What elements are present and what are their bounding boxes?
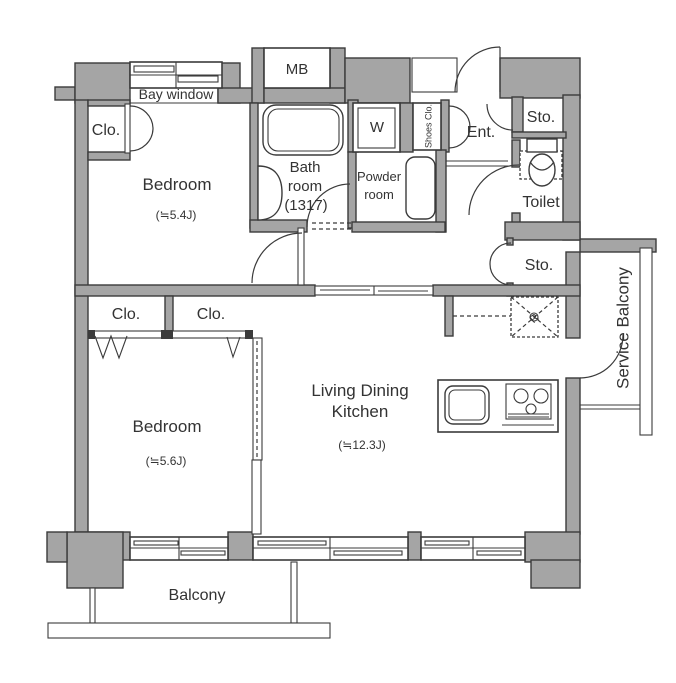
floor-plan-page: Bay window Clo. Bedroom (≒5.4J) MB Bath …	[0, 0, 676, 683]
label-bath-2: room	[288, 178, 322, 195]
label-storage-mid: Sto.	[525, 257, 553, 274]
label-bath-1: Bath	[290, 159, 321, 176]
label-closet2: Clo.	[197, 306, 225, 323]
closet2-accordion-icon	[227, 337, 240, 357]
label-balcony: Balcony	[169, 587, 226, 604]
label-entrance: Ent.	[467, 124, 495, 141]
label-bedroom1-area: (≒5.4J)	[156, 208, 197, 222]
label-ldk-area: (≒12.3J)	[338, 438, 385, 452]
label-closet-bedroom1: Clo.	[92, 122, 120, 139]
label-toilet: Toilet	[522, 194, 560, 211]
toilet-fixture	[520, 139, 562, 186]
powder-vanity	[406, 157, 435, 219]
sliding-door-hall-ldk	[315, 286, 433, 295]
label-storage-top: Sto.	[527, 109, 555, 126]
bedroom2-window	[130, 537, 228, 560]
label-ldk-2: Kitchen	[332, 402, 389, 421]
label-washer: W	[370, 119, 385, 136]
bathtub	[263, 105, 343, 155]
label-bay-window: Bay window	[139, 86, 215, 102]
closet-row-bottom-wall	[88, 330, 253, 339]
ldk-window-right	[421, 537, 525, 560]
label-ldk-1: Living Dining	[311, 381, 408, 400]
kitchen-counter	[438, 380, 558, 432]
label-bedroom1: Bedroom	[143, 175, 212, 194]
label-powder-2: room	[364, 187, 394, 202]
stove	[502, 384, 554, 425]
label-powder-1: Powder	[357, 169, 402, 184]
label-bedroom2-area: (≒5.6J)	[146, 454, 187, 468]
label-service-balcony: Service Balcony	[613, 267, 632, 389]
bath-basin	[258, 166, 282, 220]
label-bath-3: (1317)	[284, 197, 327, 214]
label-closet1: Clo.	[112, 306, 140, 323]
label-bedroom2: Bedroom	[133, 417, 202, 436]
floor-plan: Bay window Clo. Bedroom (≒5.4J) MB Bath …	[0, 0, 676, 683]
closet1-accordion-icon	[95, 336, 127, 358]
entrance-porch	[412, 58, 457, 92]
label-shoes-closet: Shoes Clo.	[423, 104, 433, 148]
sliding-door-bedroom2-ldk	[252, 338, 262, 534]
ldk-window-left	[253, 537, 408, 560]
label-meter-box: MB	[286, 61, 309, 78]
